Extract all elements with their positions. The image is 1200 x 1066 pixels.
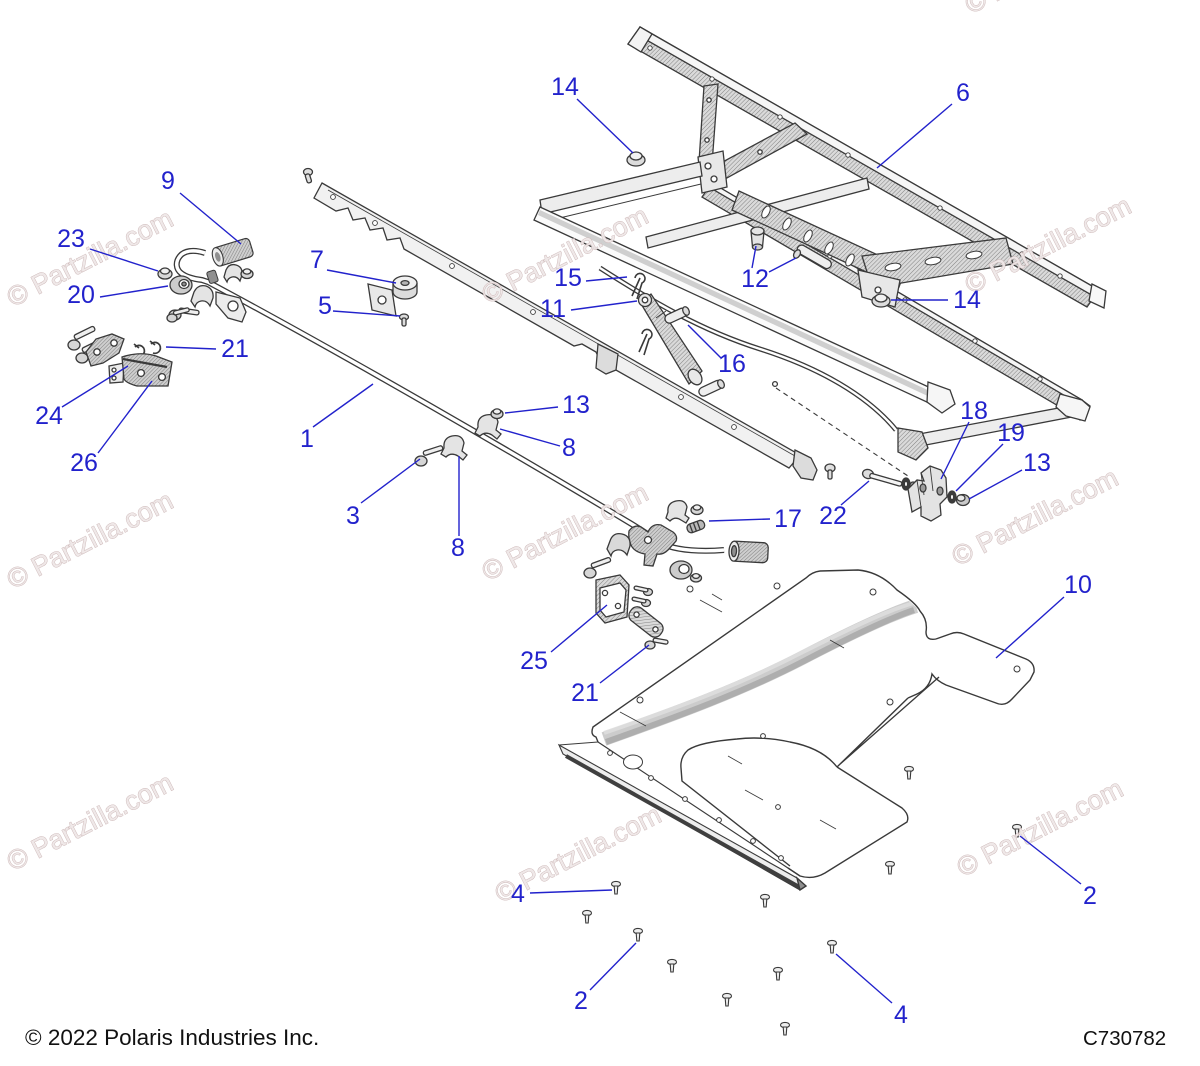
svg-text:6: 6 [956, 79, 970, 107]
svg-text:7: 7 [310, 246, 324, 274]
svg-text:13: 13 [1023, 449, 1051, 477]
svg-text:24: 24 [35, 402, 63, 430]
svg-text:4: 4 [894, 1001, 908, 1029]
svg-text:18: 18 [960, 397, 988, 425]
svg-text:15: 15 [554, 264, 582, 292]
svg-text:8: 8 [451, 534, 465, 562]
svg-text:16: 16 [718, 350, 746, 378]
svg-text:4: 4 [511, 880, 525, 908]
svg-text:19: 19 [997, 419, 1025, 447]
svg-text:C730782: C730782 [1083, 1027, 1166, 1050]
svg-text:21: 21 [221, 335, 249, 363]
svg-text:12: 12 [741, 265, 769, 293]
svg-text:23: 23 [57, 225, 85, 253]
svg-text:9: 9 [161, 167, 175, 195]
svg-text:10: 10 [1064, 571, 1092, 599]
svg-text:25: 25 [520, 647, 548, 675]
svg-text:1: 1 [300, 425, 314, 453]
svg-text:5: 5 [318, 292, 332, 320]
svg-text:14: 14 [953, 286, 981, 314]
svg-text:21: 21 [571, 679, 599, 707]
svg-text:2: 2 [574, 987, 588, 1015]
svg-text:8: 8 [562, 434, 576, 462]
svg-text:3: 3 [346, 502, 360, 530]
svg-text:26: 26 [70, 449, 98, 477]
svg-text:22: 22 [819, 502, 847, 530]
svg-text:14: 14 [551, 73, 579, 101]
svg-text:2: 2 [1083, 882, 1097, 910]
svg-text:11: 11 [540, 295, 566, 323]
svg-text:© 2022 Polaris Industries Inc.: © 2022 Polaris Industries Inc. [25, 1025, 319, 1050]
svg-text:13: 13 [562, 391, 590, 419]
svg-text:17: 17 [774, 505, 802, 533]
svg-text:20: 20 [67, 281, 95, 309]
